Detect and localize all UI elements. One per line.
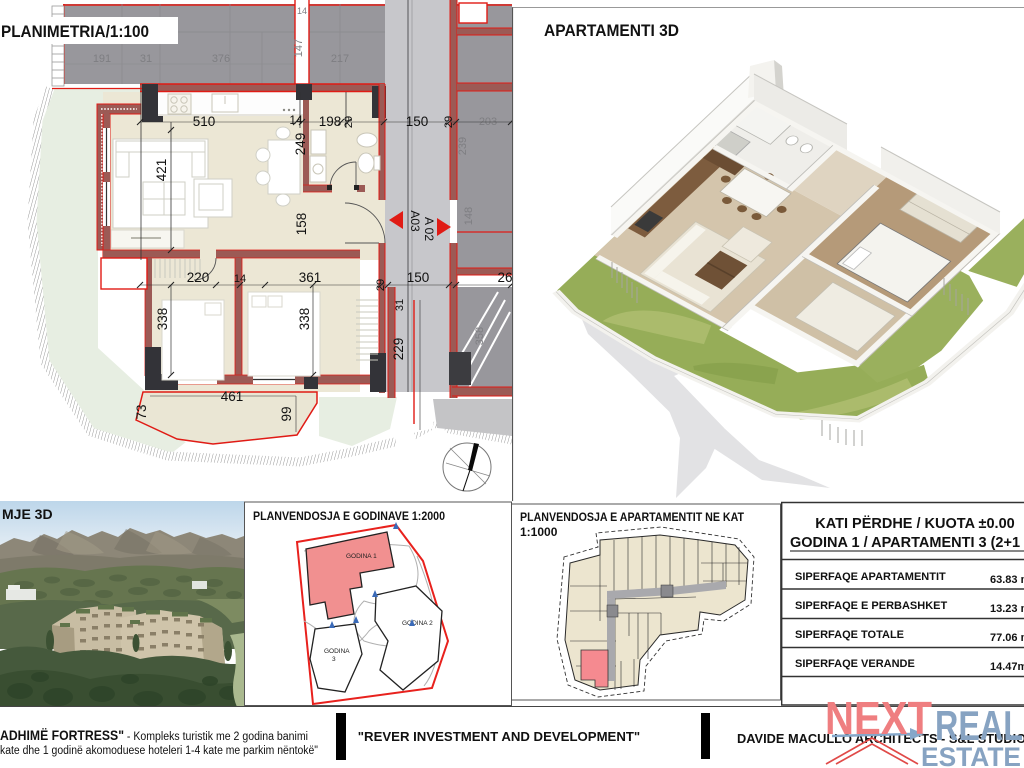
svg-text:KATI PËRDHE / KUOTA ±0.00: KATI PËRDHE / KUOTA ±0.00 [815,515,1014,532]
svg-text:14: 14 [289,113,303,127]
svg-text:kate dhe 1 godinë akomoduese h: kate dhe 1 godinë akomoduese hoteleri 1-… [0,745,318,757]
svg-text:13.23 m²: 13.23 m² [990,603,1024,615]
svg-text:MJE 3D: MJE 3D [2,506,53,522]
svg-text:73: 73 [134,404,149,419]
svg-text:"REVER INVESTMENT AND DEVELOPM: "REVER INVESTMENT AND DEVELOPMENT" [358,729,640,744]
svg-text:421: 421 [154,159,169,182]
svg-text:361: 361 [299,270,322,285]
svg-text:220: 220 [187,270,210,285]
svg-text:26: 26 [497,270,512,285]
svg-text:A 02: A 02 [422,217,436,241]
svg-text:3: 3 [332,656,336,663]
svg-text:239: 239 [457,137,469,155]
svg-text:217: 217 [331,53,349,65]
svg-text:147: 147 [293,39,305,57]
svg-text:GODINA: GODINA [324,648,350,655]
svg-text:150: 150 [407,270,430,285]
svg-text:158: 158 [294,213,309,236]
svg-text:229: 229 [391,338,406,361]
svg-text:PLANVENDOSJA E APARTAMENTIT NE: PLANVENDOSJA E APARTAMENTIT NE KAT [520,510,745,524]
svg-text:249: 249 [293,133,308,156]
svg-text:GODINA 2: GODINA 2 [402,620,433,627]
svg-text:A03: A03 [408,210,422,232]
svg-text:338: 338 [297,308,312,331]
svg-text:PLANIMETRIA/1:100: PLANIMETRIA/1:100 [1,22,149,41]
svg-text:31: 31 [394,299,406,311]
svg-text:APARTAMENTI 3D: APARTAMENTI 3D [544,21,679,40]
svg-text:63.83 m²: 63.83 m² [990,574,1024,586]
svg-text:358: 358 [474,327,486,345]
svg-text:338: 338 [155,308,170,331]
svg-text:510: 510 [193,114,216,129]
svg-text:GODINA 1: GODINA 1 [346,553,377,560]
svg-text:SIPERFAQE VERANDE: SIPERFAQE VERANDE [795,658,915,670]
svg-text:SIPERFAQE TOTALE: SIPERFAQE TOTALE [795,629,904,641]
svg-text:14: 14 [234,273,246,285]
svg-text:14.47m²: 14.47m² [990,661,1024,673]
svg-text:GODINA 1 / APARTAMENTI 3 (2+1: GODINA 1 / APARTAMENTI 3 (2+1 [790,535,1020,551]
svg-text:198: 198 [319,114,342,129]
svg-text:NEXT: NEXT [825,692,932,744]
svg-text:ESTATE: ESTATE [921,742,1021,768]
svg-text:191: 191 [93,53,111,65]
svg-text:1:1000: 1:1000 [520,525,558,539]
svg-text:14: 14 [297,6,307,16]
svg-text:ADHIMË FORTRESS" - Kompleks tu: ADHIMË FORTRESS" - Kompleks turistik me … [0,727,308,743]
svg-text:31: 31 [140,53,152,65]
svg-text:150: 150 [406,114,429,129]
svg-text:148: 148 [463,207,475,225]
svg-text:PLANVENDOSJA E GODINAVE 1:200: PLANVENDOSJA E GODINAVE 1:2000 [253,509,445,523]
svg-text:77.06 m²: 77.06 m² [990,632,1024,644]
svg-text:461: 461 [221,389,244,404]
svg-text:SIPERFAQE E PERBASHKET: SIPERFAQE E PERBASHKET [795,600,947,612]
svg-text:376: 376 [212,53,230,65]
svg-text:29: 29 [343,116,355,128]
svg-text:SIPERFAQE APARTAMENTIT: SIPERFAQE APARTAMENTIT [795,571,946,583]
svg-text:99: 99 [279,406,294,421]
